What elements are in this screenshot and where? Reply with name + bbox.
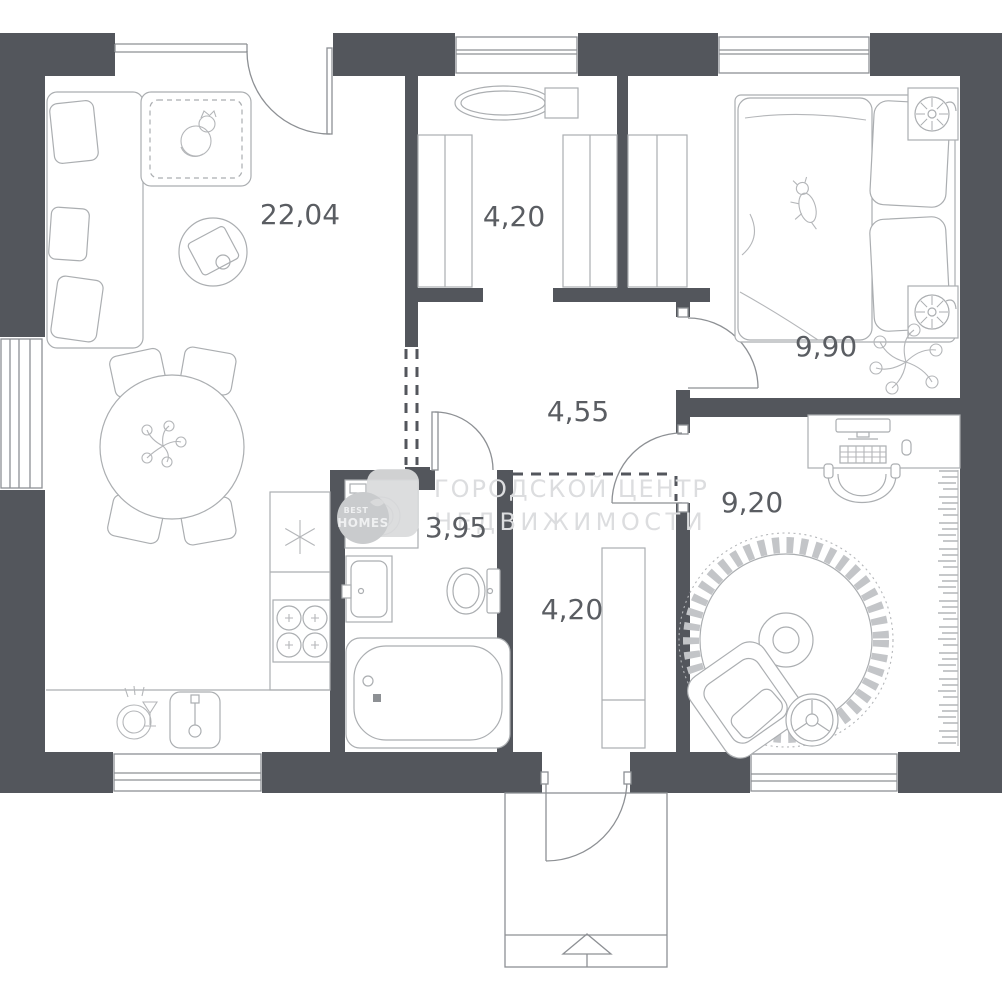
balcony-door (247, 48, 332, 134)
nightstand (908, 88, 958, 140)
room-label-bedroom: 9,90 (795, 330, 857, 363)
window-dressing (456, 37, 577, 73)
toilet (447, 568, 500, 614)
bathroom-sink (342, 556, 392, 622)
room-label-office: 9,20 (721, 486, 783, 519)
entrance-porch (505, 793, 667, 967)
bathtub (346, 638, 510, 748)
dining-set (100, 346, 244, 546)
window-bedroom (719, 37, 869, 73)
bedroom-furniture (628, 88, 958, 394)
entrance-arrow-icon (563, 934, 611, 967)
coffee-table (179, 218, 247, 286)
living-room-furniture (46, 92, 330, 748)
room-label-bathroom: 3,95 (425, 511, 487, 544)
wardrobe (628, 135, 687, 287)
wardrobe (563, 135, 617, 287)
ironing-board (455, 86, 578, 120)
bathroom-door (432, 412, 493, 470)
logo-word-homes: HOMES (337, 516, 389, 530)
wardrobe (418, 135, 472, 287)
floor-fan-icon (786, 694, 838, 746)
floor-plan-page: BEST HOMES ГОРОДСКОЙ ЦЕНТР НЕДВИЖИМОСТИ … (0, 0, 1002, 1000)
floor-plan: BEST HOMES ГОРОДСКОЙ ЦЕНТР НЕДВИЖИМОСТИ … (0, 0, 1002, 1000)
room-label-dressing: 4,20 (483, 200, 545, 233)
bookshelf (934, 470, 958, 746)
desk (808, 415, 960, 468)
dishwasher-icon (117, 686, 157, 739)
entrance-hall-furniture (602, 548, 645, 748)
room-label-living: 22,04 (260, 198, 340, 231)
room-label-corridor: 4,55 (547, 395, 609, 428)
window-office-bottom (751, 754, 897, 791)
logo-word-best: BEST (344, 506, 369, 515)
window-left (1, 339, 42, 488)
entrance-door (541, 772, 631, 861)
room-label-entrance: 4,20 (541, 593, 603, 626)
office-furniture (679, 415, 960, 765)
wardrobe (602, 548, 645, 748)
watermark-line1: ГОРОДСКОЙ ЦЕНТР (434, 474, 709, 503)
nightstand (908, 286, 958, 338)
office-chair (824, 464, 900, 503)
dressing-room-furniture (418, 86, 617, 287)
window-balcony-top (115, 44, 247, 52)
kitchen-sink (170, 692, 220, 748)
window-living-bottom (114, 754, 261, 791)
stove (273, 600, 330, 662)
